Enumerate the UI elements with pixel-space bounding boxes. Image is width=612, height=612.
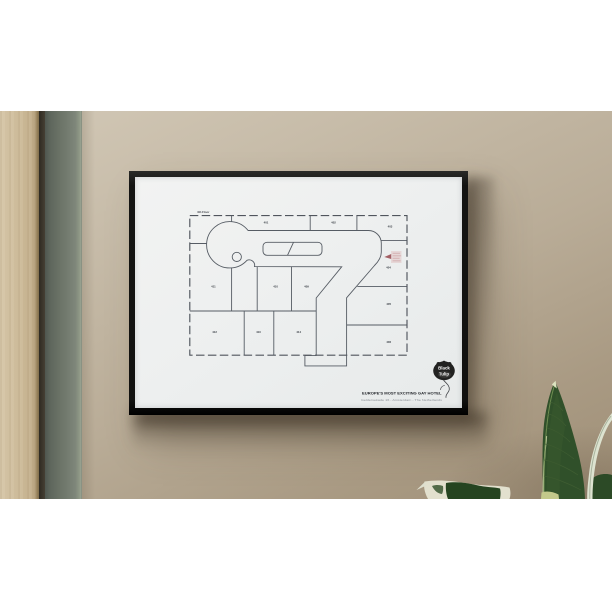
svg-text:412: 412 bbox=[212, 330, 217, 334]
svg-text:413: 413 bbox=[256, 330, 261, 334]
svg-text:410: 410 bbox=[273, 285, 278, 289]
svg-text:402: 402 bbox=[331, 221, 336, 225]
svg-text:Black: Black bbox=[438, 366, 450, 371]
svg-text:409: 409 bbox=[304, 285, 309, 289]
svg-text:4th Floor: 4th Floor bbox=[197, 210, 210, 214]
svg-text:Tulip: Tulip bbox=[439, 372, 449, 377]
svg-text:403: 403 bbox=[388, 224, 393, 228]
svg-text:414: 414 bbox=[296, 330, 301, 334]
svg-text:405: 405 bbox=[386, 302, 391, 306]
svg-text:411: 411 bbox=[211, 285, 216, 289]
svg-text:401: 401 bbox=[264, 221, 269, 225]
svg-text:406: 406 bbox=[386, 340, 391, 344]
svg-text:404: 404 bbox=[386, 266, 391, 270]
